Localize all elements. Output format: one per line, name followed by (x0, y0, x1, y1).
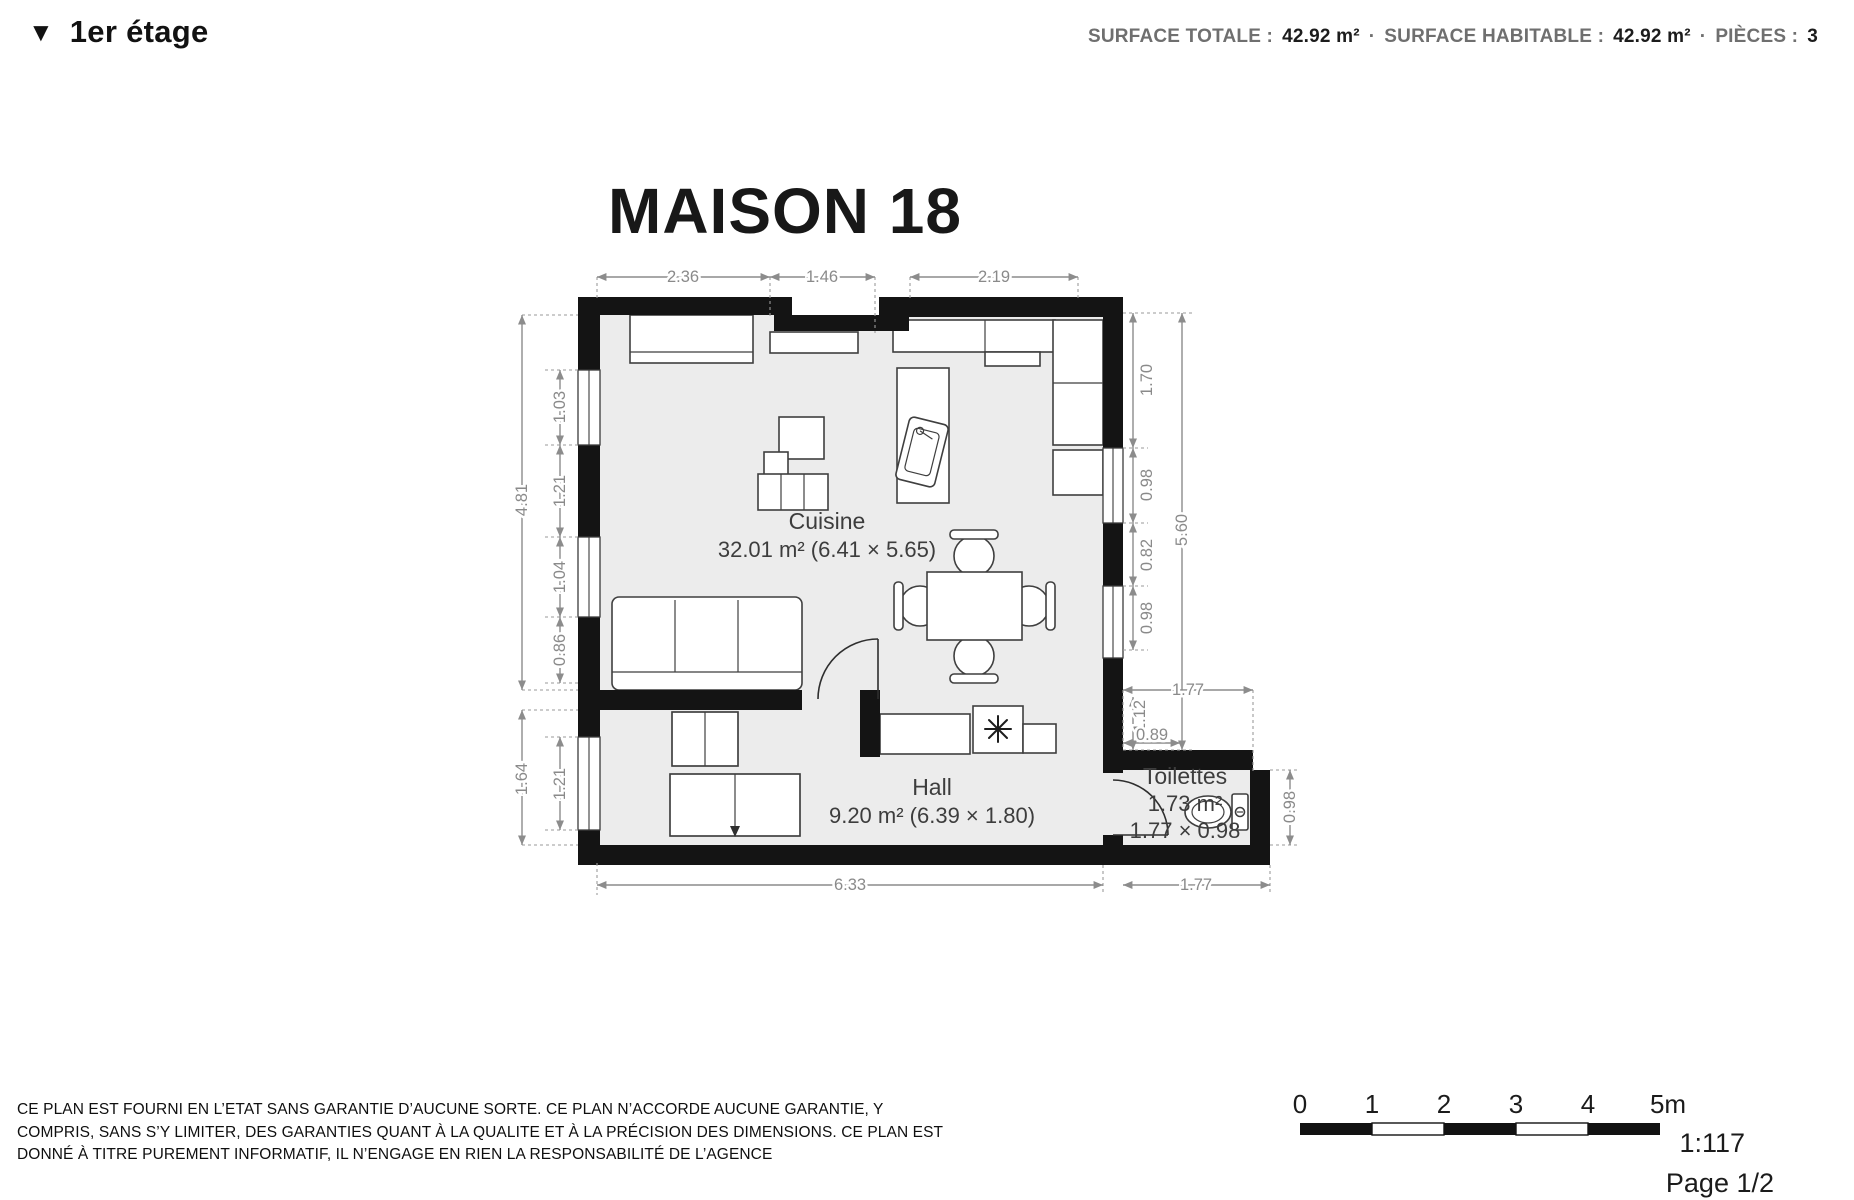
shelf (770, 332, 858, 353)
fridge (973, 706, 1023, 753)
scale-tick: 5m (1650, 1089, 1686, 1119)
scale-ratio: 1:117 (1679, 1128, 1745, 1158)
dim-label: 1.70 (1138, 364, 1156, 396)
hall-counter (880, 714, 970, 754)
disclaimer-line: CE PLAN EST FOURNI EN L’ETAT SANS GARANT… (17, 1099, 943, 1122)
room-label-toilettes: Toilettes (1143, 763, 1227, 789)
scale-tick: 1 (1365, 1089, 1379, 1119)
plan-title: MAISON 18 (608, 175, 962, 247)
dim-label: 1.03 (551, 391, 569, 423)
window (1103, 586, 1123, 658)
dim-label: 1.21 (551, 768, 569, 800)
dim-label: 1.64 (513, 763, 531, 795)
dim-label: 1.77 (1172, 681, 1204, 699)
disclaimer-line: DONNÉ À TITRE PUREMENT INFORMATIF, IL N’… (17, 1144, 943, 1167)
snowflake-icon (985, 716, 1011, 742)
sofa (612, 597, 802, 690)
dim-label: 0.82 (1138, 539, 1156, 571)
disclaimer: CE PLAN EST FOURNI EN L’ETAT SANS GARANT… (17, 1099, 943, 1167)
kitchen-counter (893, 320, 1055, 352)
dim-label: 0.86 (551, 634, 569, 666)
dim-label: 1.21 (551, 475, 569, 507)
dim-label: 1.04 (551, 561, 569, 593)
dim-label: 4.81 (513, 484, 531, 516)
dim-label: 0.98 (1281, 791, 1299, 823)
room-size-toilettes: 1.77 × 0.98 (1130, 818, 1241, 843)
room-area-hall: 9.20 m² (6.39 × 1.80) (829, 803, 1035, 828)
page-indicator: Page 1/2 (1666, 1168, 1774, 1198)
scale-tick: 4 (1581, 1089, 1595, 1119)
floor-plan-page: { "header": { "floor": { "icon": "▼", "l… (0, 0, 1854, 1200)
dim-label: 6.33 (834, 876, 866, 894)
dim-label: 0.89 (1136, 726, 1168, 744)
armchair (758, 474, 828, 510)
scale-tick: 2 (1437, 1089, 1451, 1119)
sideboard (630, 315, 753, 363)
scale-tick: 3 (1509, 1089, 1523, 1119)
dim-label: 0.98 (1138, 602, 1156, 634)
floor-plan-drawing: MAISON 18 (0, 0, 1854, 1200)
dim-label: 2.19 (978, 268, 1010, 286)
appliance (1053, 450, 1103, 495)
room-area-cuisine: 32.01 m² (6.41 × 5.65) (718, 537, 936, 562)
disclaimer-line: COMPRIS, SANS S’Y LIMITER, DES GARANTIES… (17, 1122, 943, 1145)
dim-label: 2.36 (667, 268, 699, 286)
scale-bar: 0 1 2 3 4 5m 1:117 Page 1/2 (1293, 1089, 1774, 1198)
window (578, 537, 600, 617)
window (578, 737, 600, 830)
room-area-toilettes: 1.73 m² (1148, 791, 1223, 816)
room-label-cuisine: Cuisine (789, 508, 866, 534)
dim-label: 5.60 (1173, 514, 1191, 546)
scale-tick: 0 (1293, 1089, 1307, 1119)
dim-label: 0.98 (1138, 469, 1156, 501)
dim-label: 1.46 (806, 268, 838, 286)
dining-table (927, 572, 1022, 640)
window (578, 370, 600, 445)
small-unit (1023, 724, 1056, 753)
window (1103, 448, 1123, 523)
room-label-hall: Hall (912, 774, 952, 800)
dim-label: 1.77 (1180, 876, 1212, 894)
